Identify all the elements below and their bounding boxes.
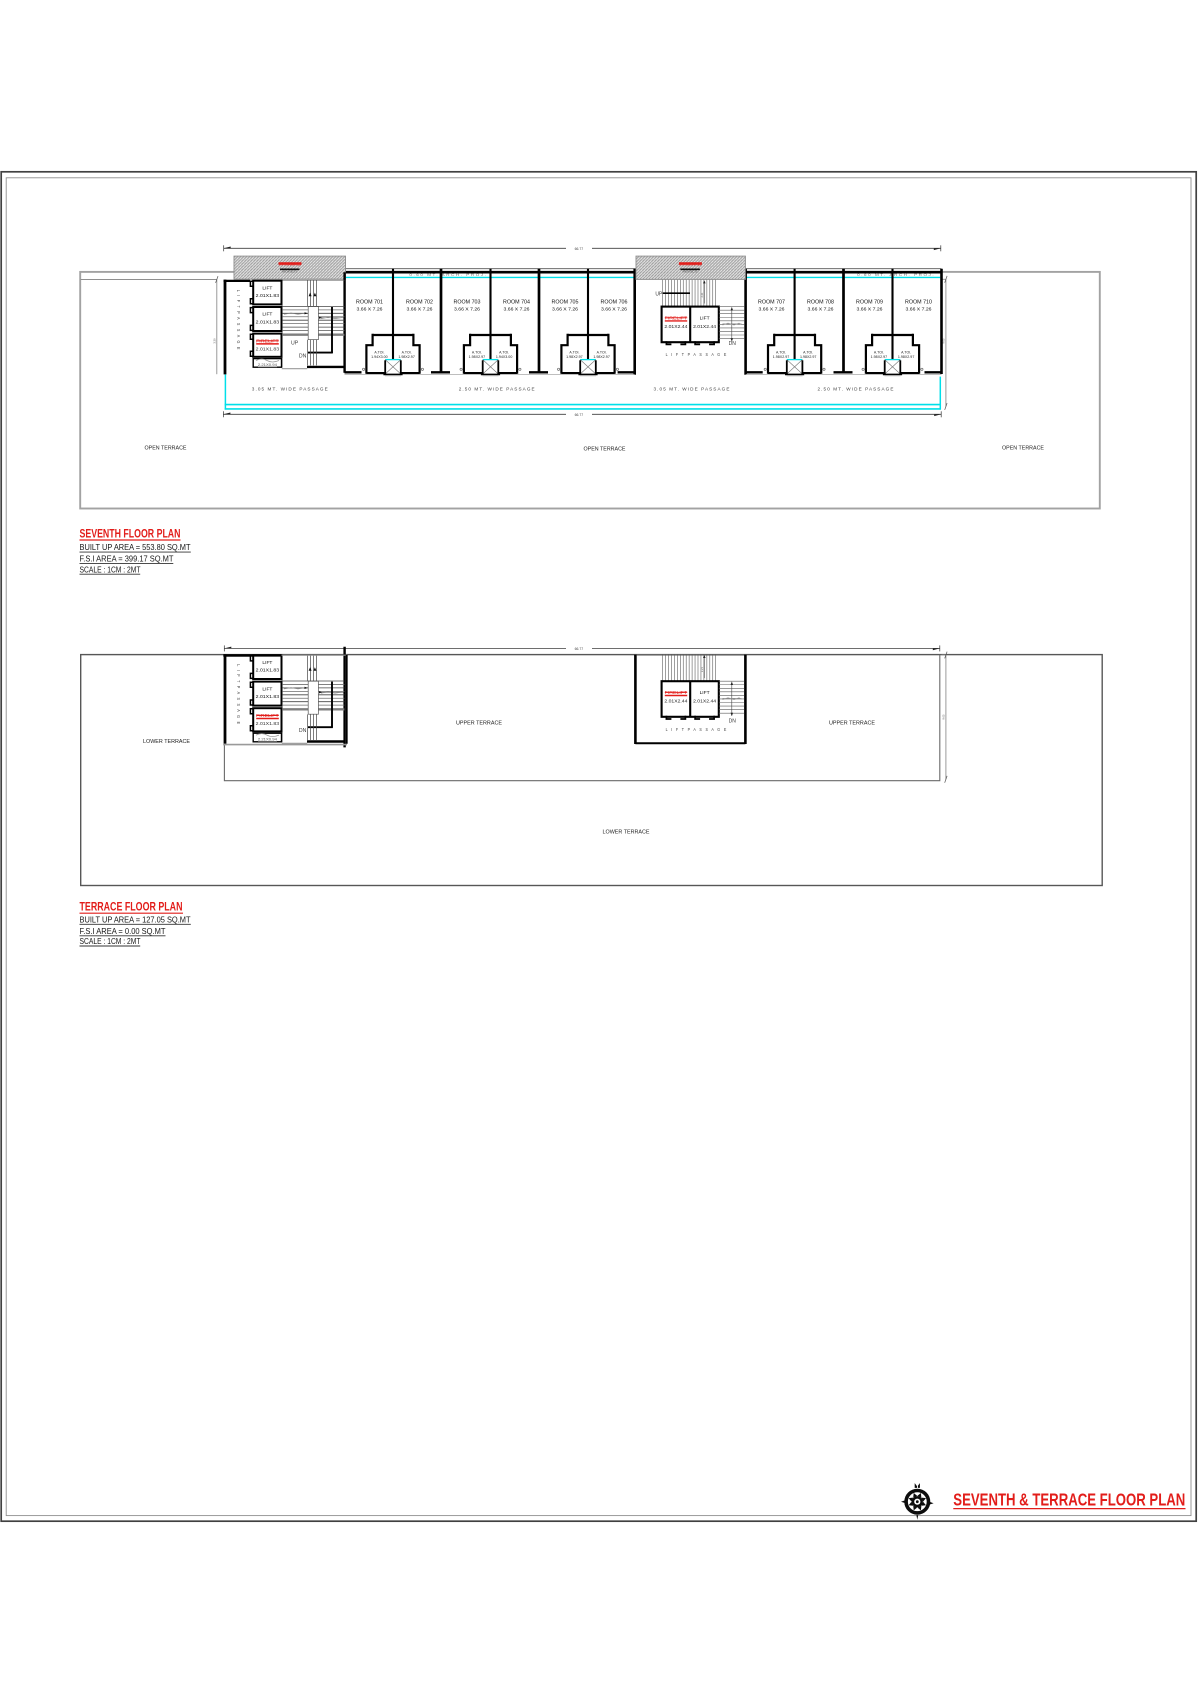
svg-text:ROOM 705: ROOM 705 — [552, 299, 579, 305]
svg-text:3.66 X 7.26: 3.66 X 7.26 — [454, 306, 480, 312]
svg-text:1.98X2.97: 1.98X2.97 — [773, 355, 790, 359]
svg-text:2.21: 2.21 — [700, 292, 704, 298]
svg-text:BUILT UP AREA = 127.05 SQ.MT: BUILT UP AREA = 127.05 SQ.MT — [80, 915, 191, 924]
svg-text:LIFT: LIFT — [262, 660, 272, 666]
svg-text:UP: UP — [655, 291, 663, 297]
svg-text:LOWER TERRACE: LOWER TERRACE — [143, 739, 191, 745]
svg-text:LIFT: LIFT — [262, 312, 272, 318]
svg-text:2.01X2.44: 2.01X2.44 — [664, 324, 687, 329]
svg-text:LIFT: LIFT — [700, 690, 710, 696]
svg-text:2.01X1.83: 2.01X1.83 — [256, 694, 280, 699]
svg-text:66.77: 66.77 — [575, 647, 584, 651]
svg-text:ROOM 710: ROOM 710 — [905, 299, 932, 305]
svg-text:LOWER TERRACE: LOWER TERRACE — [603, 829, 651, 835]
svg-text:SEVENTH & TERRACE FLOOR PLAN: SEVENTH & TERRACE FLOOR PLAN — [953, 1490, 1185, 1510]
svg-text:ARCHITECTS: ARCHITECTS — [682, 270, 697, 273]
svg-text:2.21X0.94: 2.21X0.94 — [258, 737, 277, 741]
svg-text:ROOM 707: ROOM 707 — [758, 299, 785, 305]
svg-text:SCALE : 1CM : 2MT: SCALE : 1CM : 2MT — [80, 937, 141, 946]
svg-text:A.TOI.: A.TOI. — [874, 350, 884, 354]
svg-text:1.98X2.97: 1.98X2.97 — [469, 355, 486, 359]
svg-text:SCALE : 1CM : 2MT: SCALE : 1CM : 2MT — [80, 565, 141, 574]
svg-text:UP: UP — [291, 341, 299, 347]
svg-text:2.01X1.83: 2.01X1.83 — [256, 346, 280, 351]
svg-text:TERRACE FLOOR PLAN: TERRACE FLOOR PLAN — [80, 902, 183, 914]
svg-text:ROOM 706: ROOM 706 — [601, 299, 628, 305]
svg-text:ROOM 704: ROOM 704 — [503, 299, 530, 305]
svg-text:3.66 X 7.26: 3.66 X 7.26 — [857, 306, 883, 312]
svg-text:ROOM 708: ROOM 708 — [807, 299, 834, 305]
svg-text:A.TOI.: A.TOI. — [901, 350, 911, 354]
svg-text:L I F T P A S S A G E: L I F T P A S S A G E — [236, 290, 241, 351]
svg-text:LIFT: LIFT — [262, 285, 272, 291]
svg-text:3.66 X 7.26: 3.66 X 7.26 — [759, 306, 785, 312]
svg-text:2.01X1.83: 2.01X1.83 — [256, 721, 280, 726]
svg-text:ROOM 709: ROOM 709 — [856, 299, 883, 305]
svg-text:66.77: 66.77 — [575, 413, 584, 417]
svg-text:66.77: 66.77 — [575, 247, 584, 251]
svg-text:2.50 MT. WIDE PASSAGE: 2.50 MT. WIDE PASSAGE — [818, 387, 895, 392]
svg-text:A.TOI.: A.TOI. — [597, 350, 607, 354]
svg-text:3.05 MT. WIDE PASSAGE: 3.05 MT. WIDE PASSAGE — [252, 387, 329, 392]
svg-text:F.S.I AREA = 399.17 SQ.MT: F.S.I AREA = 399.17 SQ.MT — [80, 555, 174, 564]
svg-text:1.98X2.97: 1.98X2.97 — [398, 355, 415, 359]
svg-text:L I F T P A S S A G E: L I F T P A S S A G E — [666, 352, 728, 357]
svg-text:OPEN TERRACE: OPEN TERRACE — [145, 446, 188, 452]
svg-text:F.S.I AREA = 0.00 SQ.MT: F.S.I AREA = 0.00 SQ.MT — [80, 927, 166, 936]
svg-text:ARCHITECTS: ARCHITECTS — [282, 270, 297, 273]
svg-text:UPPER TERRACE: UPPER TERRACE — [829, 721, 876, 727]
svg-text:DN: DN — [299, 353, 307, 359]
svg-text:3.66 X 7.26: 3.66 X 7.26 — [407, 306, 433, 312]
svg-text:DN: DN — [299, 728, 307, 734]
svg-text:1.94X3.00: 1.94X3.00 — [496, 355, 513, 359]
svg-text:OPEN TERRACE: OPEN TERRACE — [584, 447, 627, 453]
svg-text:3.05 MT. WIDE PASSAGE: 3.05 MT. WIDE PASSAGE — [654, 387, 731, 392]
svg-text:1.94X3.00: 1.94X3.00 — [371, 355, 388, 359]
svg-text:ROOM 701: ROOM 701 — [356, 299, 383, 305]
svg-text:1.98X2.97: 1.98X2.97 — [898, 355, 915, 359]
svg-text:9.05: 9.05 — [942, 714, 946, 720]
svg-text:2.01X2.44: 2.01X2.44 — [693, 324, 716, 329]
svg-text:2.21X0.94: 2.21X0.94 — [258, 363, 277, 367]
svg-text:2.01X1.83: 2.01X1.83 — [256, 668, 280, 673]
svg-text:2.01X1.83: 2.01X1.83 — [256, 293, 280, 298]
svg-text:3.66 X 7.26: 3.66 X 7.26 — [601, 306, 627, 312]
svg-text:1.98X2.97: 1.98X2.97 — [800, 355, 817, 359]
svg-text:L I F T P A S S A G E: L I F T P A S S A G E — [236, 664, 241, 725]
svg-text:1.98X2.97: 1.98X2.97 — [593, 355, 610, 359]
svg-text:ROOM 702: ROOM 702 — [406, 299, 433, 305]
svg-text:0.60 MT. ARCH. PROJ.: 0.60 MT. ARCH. PROJ. — [857, 273, 935, 277]
svg-text:A.TOI.: A.TOI. — [499, 350, 509, 354]
svg-text:2.01X1.83: 2.01X1.83 — [256, 319, 280, 324]
svg-text:A.TOI.: A.TOI. — [776, 350, 786, 354]
svg-text:2.01X2.44: 2.01X2.44 — [664, 698, 687, 703]
svg-text:A.TOI.: A.TOI. — [374, 350, 384, 354]
svg-text:DN: DN — [729, 341, 737, 347]
svg-text:3.30: 3.30 — [213, 338, 217, 344]
svg-text:3.66 X 7.26: 3.66 X 7.26 — [357, 306, 383, 312]
svg-text:3.66 X 7.26: 3.66 X 7.26 — [504, 306, 530, 312]
svg-text:2.01X2.44: 2.01X2.44 — [693, 698, 716, 703]
svg-text:1.98X2.97: 1.98X2.97 — [566, 355, 583, 359]
svg-text:2.21: 2.21 — [700, 667, 704, 673]
svg-text:1.98X2.97: 1.98X2.97 — [871, 355, 888, 359]
svg-text:L I F T P A S S A G E: L I F T P A S S A G E — [666, 727, 728, 732]
svg-text:A.TOI.: A.TOI. — [472, 350, 482, 354]
svg-text:OPEN TERRACE: OPEN TERRACE — [1002, 446, 1045, 452]
svg-text:A.TOI.: A.TOI. — [402, 350, 412, 354]
svg-text:3.66 X 7.26: 3.66 X 7.26 — [906, 306, 932, 312]
svg-text:A.TOI.: A.TOI. — [803, 350, 813, 354]
svg-text:LIFT: LIFT — [700, 315, 710, 321]
svg-text:LIFT: LIFT — [262, 686, 272, 692]
svg-text:BUILT UP AREA = 553.80 SQ.MT: BUILT UP AREA = 553.80 SQ.MT — [80, 543, 191, 552]
svg-text:3.66 X 7.26: 3.66 X 7.26 — [808, 306, 834, 312]
svg-text:0.60 MT. ARCH. PROJ.: 0.60 MT. ARCH. PROJ. — [409, 273, 487, 277]
svg-text:A.TOI.: A.TOI. — [569, 350, 579, 354]
svg-text:SEVENTH FLOOR PLAN: SEVENTH FLOOR PLAN — [80, 529, 181, 541]
svg-text:DN: DN — [729, 719, 737, 725]
svg-text:3.66 X 7.26: 3.66 X 7.26 — [552, 306, 578, 312]
svg-text:2.50 MT. WIDE PASSAGE: 2.50 MT. WIDE PASSAGE — [459, 387, 536, 392]
svg-text:UPPER TERRACE: UPPER TERRACE — [456, 721, 503, 727]
svg-text:ROOM 703: ROOM 703 — [454, 299, 481, 305]
